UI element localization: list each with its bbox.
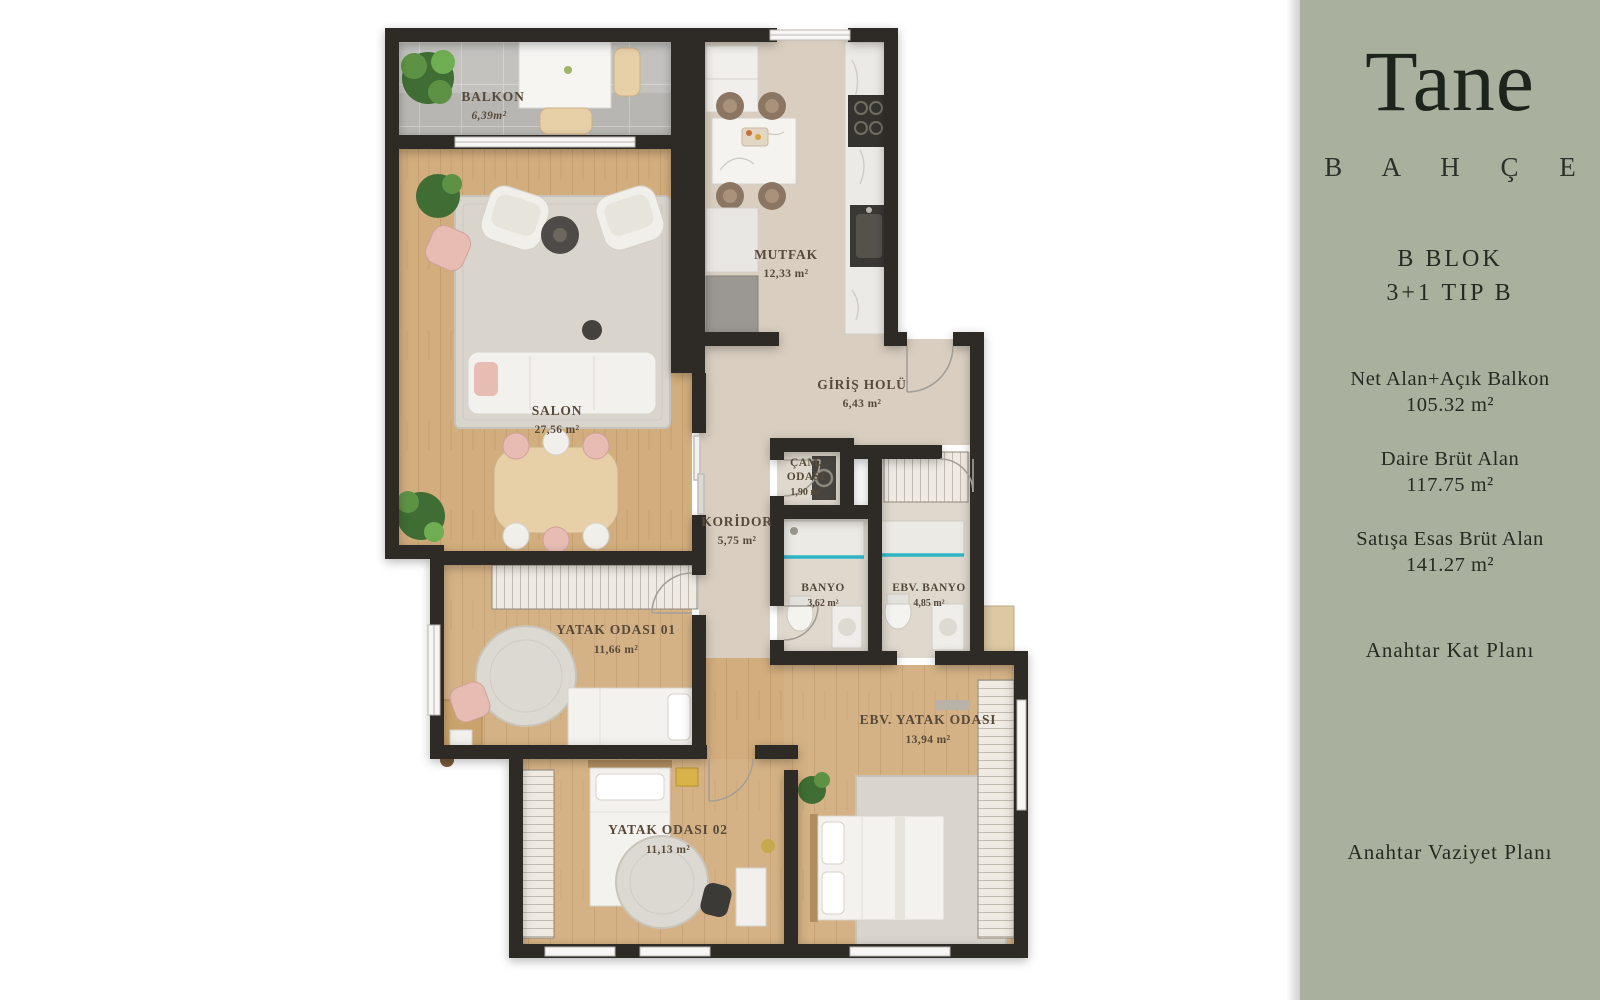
room-label-balkon: BALKON — [461, 89, 524, 104]
room-label-cam-odasi-1: ÇAM. — [790, 457, 822, 469]
room-area-koridor: 5,75 m² — [718, 535, 757, 547]
room-label-mutfak: MUTFAK — [754, 247, 818, 262]
room-area-salon: 27,56 m² — [535, 424, 580, 436]
room-label-yatak-odasi-02: YATAK ODASI 02 — [608, 822, 728, 837]
room-area-mutfak: 12,33 m² — [764, 268, 809, 280]
stat-label: Daire Brüt Alan — [1300, 446, 1600, 472]
room-label-yatak-odasi-01: YATAK ODASI 01 — [556, 622, 676, 637]
site-plan-label: Anahtar Vaziyet Planı — [1300, 840, 1600, 865]
stat-value: 117.75 m² — [1300, 472, 1600, 498]
room-area-yatak-odasi-02: 11,13 m² — [646, 844, 690, 856]
info-sidebar: Tane B A H Ç E B BLOK 3+1 TIP B Net Alan… — [1300, 0, 1600, 1000]
room-area-cam-odasi: 1,90 m² — [790, 487, 821, 498]
stat-net-alan: Net Alan+Açık Balkon 105.32 m² — [1300, 366, 1600, 418]
room-area-giris-holu: 6,43 m² — [843, 398, 882, 410]
brand-logo: Tane — [1300, 38, 1600, 124]
room-label-ebv-banyo: EBV. BANYO — [892, 582, 965, 594]
stat-label: Satışa Esas Brüt Alan — [1300, 526, 1600, 552]
stat-value: 105.32 m² — [1300, 392, 1600, 418]
floorplan-page: BALKON 6,39m² SALON 27,56 m² MUTFAK 12,3… — [0, 0, 1600, 1000]
stat-satis-brut-alan: Satışa Esas Brüt Alan 141.27 m² — [1300, 526, 1600, 578]
floor-plan: BALKON 6,39m² SALON 27,56 m² MUTFAK 12,3… — [0, 0, 1300, 1000]
room-label-banyo: BANYO — [801, 582, 845, 594]
stat-label: Net Alan+Açık Balkon — [1300, 366, 1600, 392]
room-area-ebv-yatak-odasi: 13,94 m² — [906, 734, 951, 746]
area-stats: Net Alan+Açık Balkon 105.32 m² Daire Brü… — [1300, 366, 1600, 606]
key-floor-plan-label: Anahtar Kat Planı — [1300, 638, 1600, 663]
room-label-ebv-yatak-odasi: EBV. YATAK ODASI — [860, 712, 997, 727]
unit-type-label: 3+1 TIP B — [1300, 280, 1600, 307]
stat-brut-alan: Daire Brüt Alan 117.75 m² — [1300, 446, 1600, 498]
stat-value: 141.27 m² — [1300, 552, 1600, 578]
floor-plan-drawing: BALKON 6,39m² SALON 27,56 m² MUTFAK 12,3… — [0, 0, 1300, 1000]
block-label: B BLOK — [1300, 246, 1600, 273]
room-label-cam-odasi-2: ODASI — [787, 471, 826, 483]
brand-subtitle: B A H Ç E — [1300, 152, 1600, 183]
room-label-salon: SALON — [532, 403, 583, 418]
room-area-yatak-odasi-01: 11,66 m² — [594, 644, 638, 656]
room-label-giris-holu: GİRİŞ HOLÜ — [817, 377, 906, 392]
room-label-koridor: KORİDOR — [701, 514, 773, 529]
room-area-banyo: 3,62 m² — [807, 598, 838, 609]
room-area-ebv-banyo: 4,85 m² — [913, 598, 944, 609]
room-area-balkon: 6,39m² — [472, 110, 507, 122]
